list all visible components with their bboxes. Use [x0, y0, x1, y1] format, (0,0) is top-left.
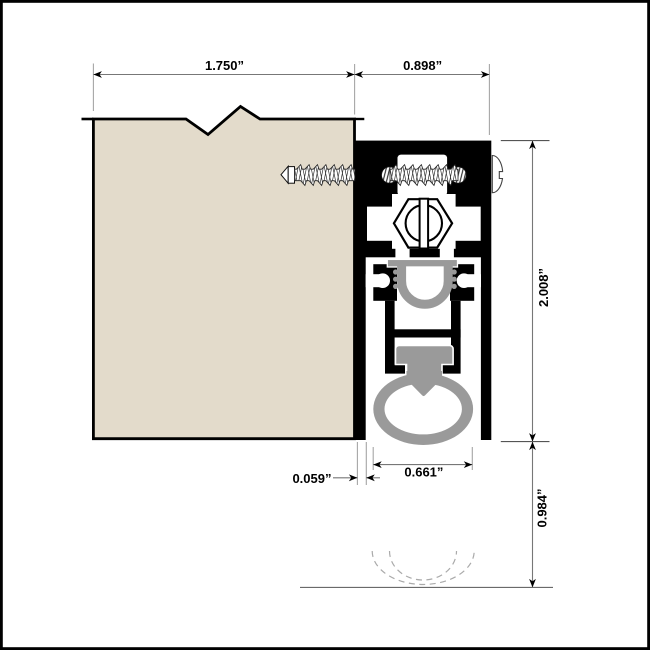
svg-text:2.008”: 2.008”	[536, 268, 551, 307]
svg-text:1.750”: 1.750”	[205, 58, 244, 73]
svg-text:0.661”: 0.661”	[404, 464, 443, 479]
svg-text:0.984”: 0.984”	[535, 488, 550, 527]
svg-text:0.059”: 0.059”	[292, 471, 331, 486]
svg-text:0.898”: 0.898”	[403, 58, 442, 73]
